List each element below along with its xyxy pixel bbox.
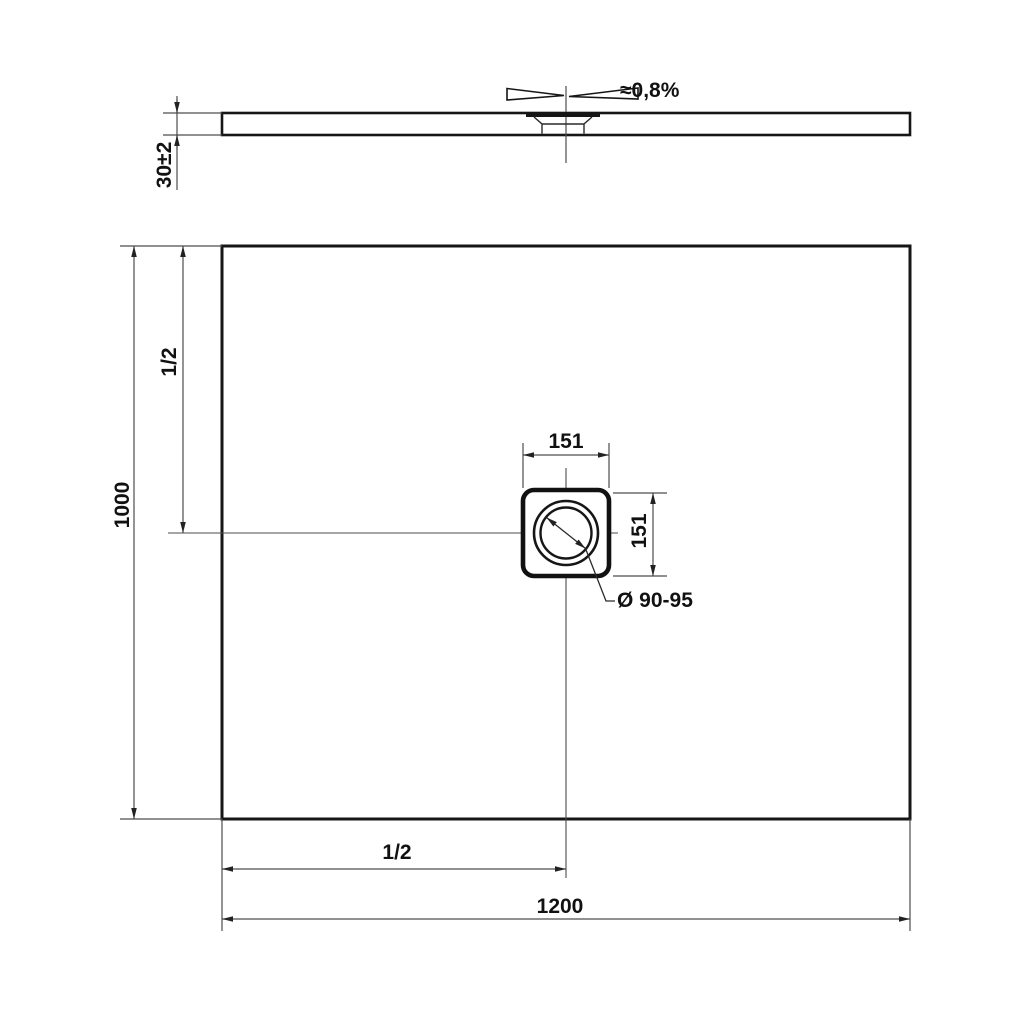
- drain-cover-profile: [526, 112, 600, 117]
- thickness-label: 30±2: [153, 105, 177, 225]
- height-label: 1000: [111, 445, 135, 565]
- half-height-label: 1/2: [158, 302, 182, 422]
- technical-drawing-canvas: ≈0,8% 30±2 1000 1/2 151 151 Ø 90-95 1/2 …: [0, 0, 1024, 1024]
- side-view: [163, 86, 910, 190]
- slope-label: ≈0,8%: [620, 79, 740, 103]
- width-label: 1200: [500, 895, 620, 919]
- drain-height-label: 151: [628, 471, 652, 591]
- drain-width-label: 151: [506, 430, 626, 454]
- slope-wedge-left-icon: [507, 89, 564, 101]
- plan-view: [120, 246, 910, 931]
- drain-diameter-label: Ø 90-95: [617, 589, 737, 613]
- half-width-label: 1/2: [337, 841, 457, 865]
